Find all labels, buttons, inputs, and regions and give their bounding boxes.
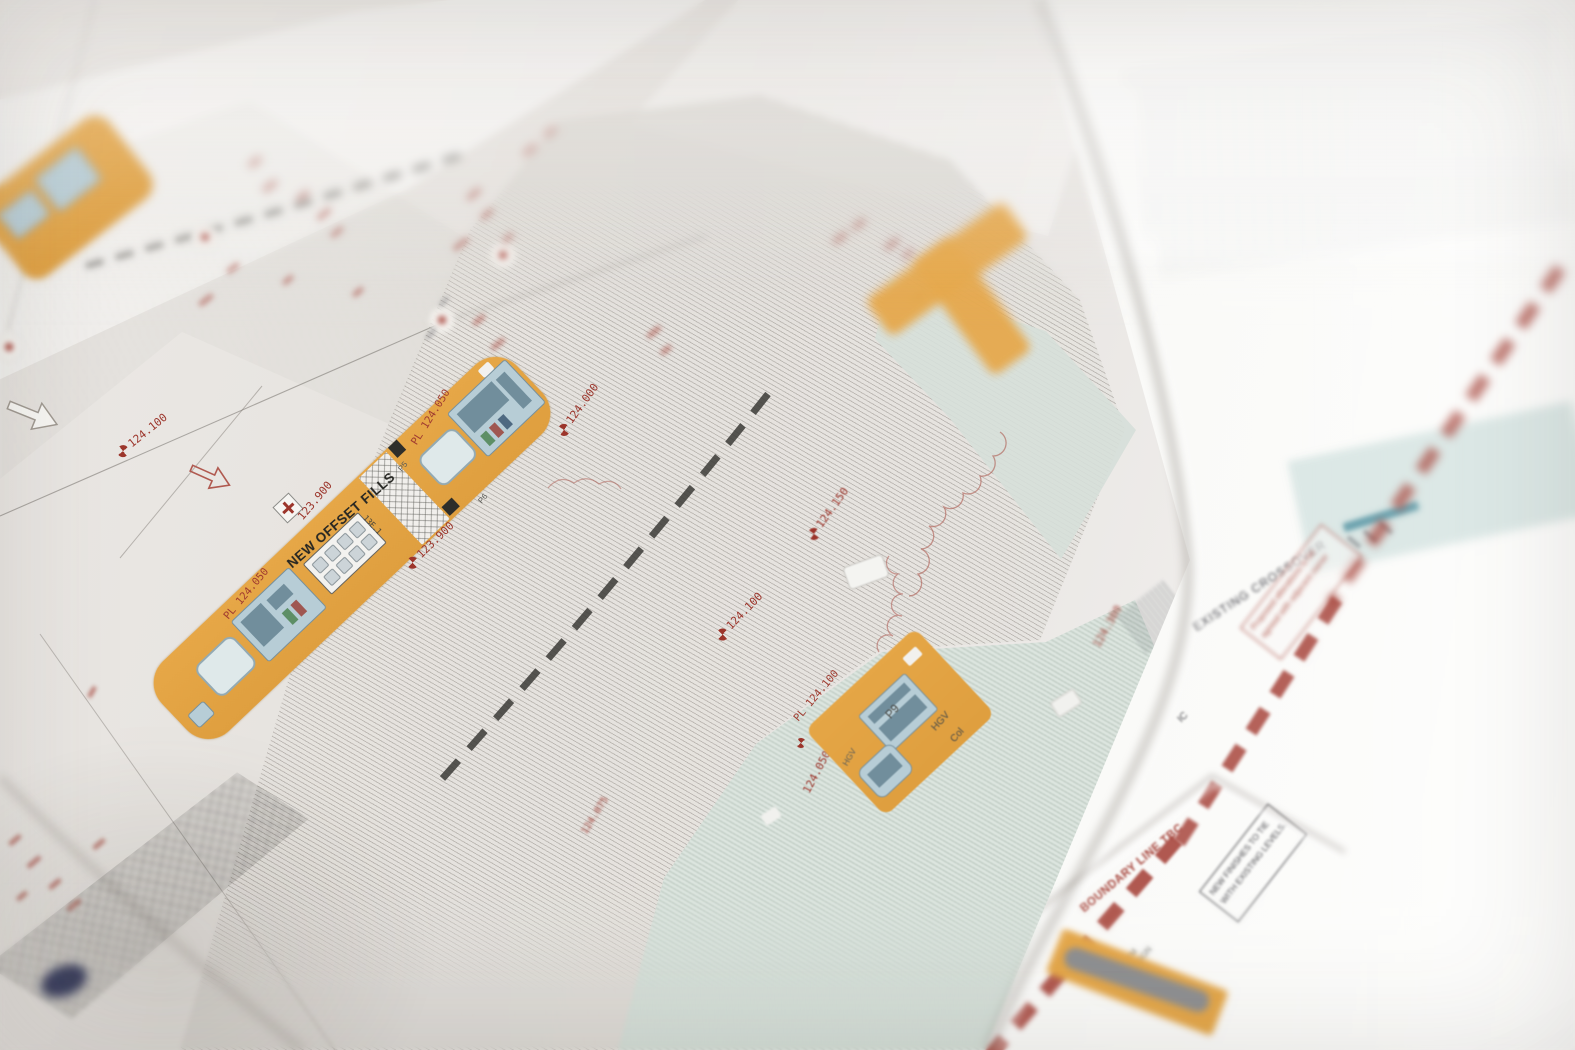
sheet-edge-shadow [0, 0, 1575, 1050]
site-plan-photo: 13E.1 NEW OFFSET FILLS P5 P6 124.100 123… [0, 0, 1575, 1050]
